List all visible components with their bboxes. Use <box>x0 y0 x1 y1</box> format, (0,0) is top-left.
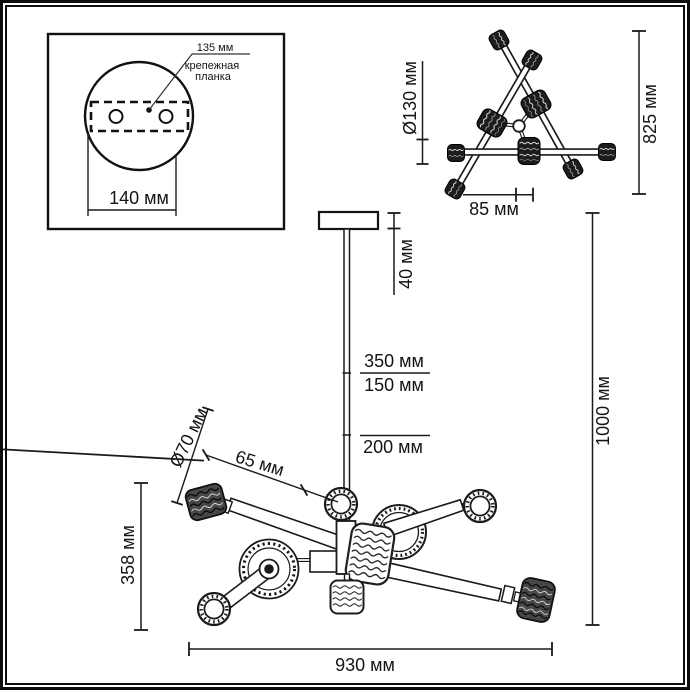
bottom-shade <box>331 574 364 614</box>
ring-shade-center <box>325 488 357 520</box>
top-mid-shade <box>519 88 553 120</box>
dim-130-label: Ø130 мм <box>400 61 420 135</box>
dim-358-label: 358 мм <box>118 525 138 585</box>
ring-shade-upper-right <box>464 490 496 522</box>
ring-shade-lower-left <box>198 593 230 625</box>
ceiling-canopy <box>319 212 378 229</box>
dim-65-label: 65 мм <box>233 446 286 480</box>
drawing-sheet: 135 мм крепежная планка 140 мм <box>0 0 690 690</box>
dim-930-label: 930 мм <box>335 655 395 675</box>
dim-200-label: 200 мм <box>363 437 423 457</box>
dim-350-label: 350 мм <box>364 351 424 371</box>
top-mid-shade <box>518 138 540 165</box>
top-end-shade <box>448 145 465 162</box>
dim-140-label: 140 мм <box>109 188 169 208</box>
plate-name-label-2: планка <box>195 71 232 83</box>
dim-150-label: 150 мм <box>364 375 424 395</box>
hanging-rod <box>344 229 350 521</box>
top-end-shade <box>599 144 616 161</box>
top-view-hub <box>513 120 525 132</box>
dim-85-label: 85 мм <box>469 199 519 219</box>
side-shade-upper-left <box>184 482 228 522</box>
dim-1000-label: 1000 мм <box>593 376 613 446</box>
top-view: Ø130 мм 825 мм 85 мм <box>400 28 660 219</box>
dim-40-label: 40 мм <box>396 239 416 289</box>
chandelier-dimension-drawing: 135 мм крепежная планка 140 мм <box>3 3 690 693</box>
mount-hole-left <box>110 110 123 123</box>
canopy-outline <box>85 62 193 170</box>
dim-135-label: 135 мм <box>197 42 234 54</box>
mount-hole-right <box>160 110 173 123</box>
central-shade <box>344 522 396 586</box>
side-view: 40 мм 350 мм 150 мм 200 мм 1000 мм Ø70 м… <box>3 212 613 675</box>
side-shade-lower-right <box>516 577 557 624</box>
mounting-plate-inset: 135 мм крепежная планка 140 мм <box>48 34 284 229</box>
dim-825-label: 825 мм <box>640 84 660 144</box>
